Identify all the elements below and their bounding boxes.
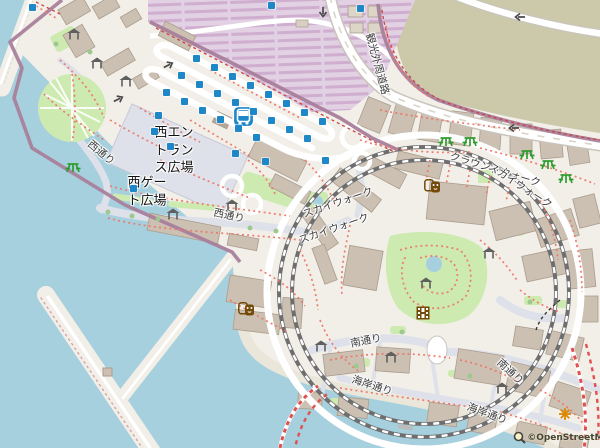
bus-stop-marker xyxy=(301,109,308,116)
bus-stop-marker xyxy=(232,99,239,106)
bus-stop-marker xyxy=(235,125,242,132)
map-label-west-gate-plaza: 西ゲー ト広場 xyxy=(127,174,166,209)
shelter-icon xyxy=(67,25,81,44)
bus-stop-marker xyxy=(29,4,36,11)
shelter-icon xyxy=(90,54,104,73)
bus-stop-marker xyxy=(181,98,188,105)
osm-attribution[interactable]: ©OpenStreetMap xyxy=(513,431,600,444)
bus-stop-marker xyxy=(265,91,272,98)
shelter-icon xyxy=(225,196,239,215)
oneway-arrow-icon xyxy=(314,6,333,19)
bus-stop-marker xyxy=(232,150,239,157)
bus-stop-marker xyxy=(151,128,158,135)
bus-stop-marker xyxy=(319,118,326,125)
map-label-west-street-1: 西通り xyxy=(84,137,117,168)
bus-stop-marker xyxy=(167,143,174,150)
shelter-icon xyxy=(384,348,398,367)
bus-stop-marker xyxy=(253,134,260,141)
osm-magnifier-icon xyxy=(513,431,526,444)
masks-icon xyxy=(424,178,441,197)
bus-stop-marker xyxy=(268,117,275,124)
oneway-arrow-icon xyxy=(513,8,526,27)
bus-stop-marker xyxy=(286,126,293,133)
map-canvas[interactable]: 西エン トラン ス広場西ゲー ト広場西通り西通り観光外周道路クラウンドウォークス… xyxy=(0,0,600,448)
oneway-arrow-icon xyxy=(158,53,178,76)
bus-stop-marker xyxy=(304,135,311,142)
bus-stop-marker xyxy=(217,116,224,123)
picnic-icon xyxy=(558,170,574,189)
bus-stop-marker xyxy=(130,185,137,192)
map-label-south-street-1: 南通り xyxy=(349,331,383,351)
bus-stop-marker xyxy=(357,5,364,12)
bus-stop-marker xyxy=(247,82,254,89)
map-overlay-layer: 西エン トラン ス広場西ゲー ト広場西通り西通り観光外周道路クラウンドウォークス… xyxy=(0,0,600,448)
bus-stop-marker xyxy=(262,158,269,165)
shelter-icon xyxy=(419,274,433,293)
shelter-icon xyxy=(482,244,496,263)
picnic-icon xyxy=(540,156,556,175)
map-label-kanko-gaishu-road: 観光外周道路 xyxy=(362,32,392,97)
bus-stop-marker xyxy=(193,55,200,62)
bus-stop-marker xyxy=(196,81,203,88)
picnic-icon xyxy=(438,133,454,152)
bus-stop-marker xyxy=(178,72,185,79)
bus-stop-marker xyxy=(268,2,275,9)
picnic-icon xyxy=(519,146,535,165)
map-label-west-entrance-plaza: 西エン トラン ス広場 xyxy=(154,125,193,178)
shelter-icon xyxy=(314,337,328,356)
picnic-icon xyxy=(65,159,81,178)
bus-stop-marker xyxy=(283,100,290,107)
shelter-icon xyxy=(119,72,133,91)
bus-stop-marker xyxy=(214,90,221,97)
bus-stop-marker xyxy=(163,89,170,96)
picnic-icon xyxy=(462,133,478,152)
bus-stop-marker xyxy=(155,112,162,119)
bus-stop-marker xyxy=(199,107,206,114)
oneway-arrow-icon xyxy=(507,119,520,138)
map-label-coast-street-2: 海岸通り xyxy=(465,400,509,428)
attraction-icon xyxy=(558,406,572,425)
osm-attribution-text: ©OpenStreetMap xyxy=(527,433,600,443)
bus-stop-marker xyxy=(211,64,218,71)
shelter-icon xyxy=(495,379,509,398)
bus-stop-marker xyxy=(229,73,236,80)
cinema-icon xyxy=(416,305,430,324)
shelter-icon xyxy=(166,205,180,224)
map-label-coast-street-1: 海岸通り xyxy=(350,373,394,399)
masks-icon xyxy=(238,301,255,320)
bus-stop-marker xyxy=(250,108,257,115)
bus-stop-marker xyxy=(322,157,329,164)
